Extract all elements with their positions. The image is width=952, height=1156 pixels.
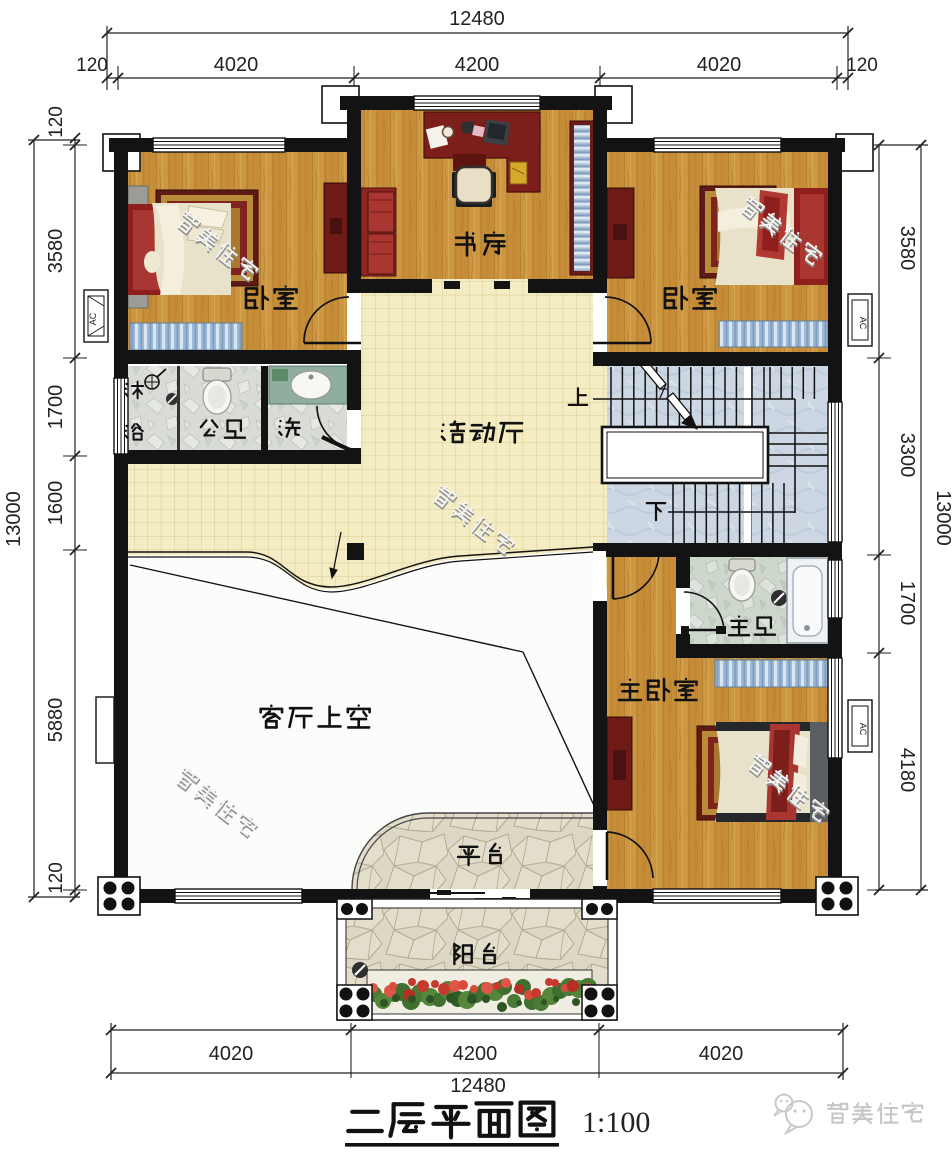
svg-text:4020: 4020 <box>699 1043 744 1065</box>
svg-text:13000: 13000 <box>3 491 25 547</box>
svg-text:1700: 1700 <box>45 385 67 430</box>
svg-text:120: 120 <box>846 55 878 76</box>
svg-text:AC: AC <box>858 317 868 330</box>
svg-text:4020: 4020 <box>214 54 259 76</box>
svg-text:4020: 4020 <box>697 54 742 76</box>
svg-text:AC: AC <box>88 312 98 325</box>
svg-text:3300: 3300 <box>896 433 918 478</box>
svg-text:AC: AC <box>858 723 868 736</box>
svg-text:120: 120 <box>46 862 67 894</box>
svg-text:13000: 13000 <box>932 490 952 546</box>
svg-text:1600: 1600 <box>45 481 67 526</box>
svg-text:12480: 12480 <box>449 8 505 30</box>
svg-text:4020: 4020 <box>209 1043 254 1065</box>
svg-text:120: 120 <box>76 55 108 76</box>
svg-text:5880: 5880 <box>45 698 67 743</box>
svg-text:4180: 4180 <box>896 748 918 793</box>
svg-text:3580: 3580 <box>45 229 67 274</box>
svg-text:4200: 4200 <box>455 54 500 76</box>
svg-text:1:100: 1:100 <box>582 1106 650 1139</box>
svg-text:1700: 1700 <box>896 581 918 626</box>
svg-text:12480: 12480 <box>450 1075 506 1097</box>
svg-text:3580: 3580 <box>896 226 918 271</box>
svg-text:4200: 4200 <box>453 1043 498 1065</box>
svg-text:120: 120 <box>46 106 67 138</box>
